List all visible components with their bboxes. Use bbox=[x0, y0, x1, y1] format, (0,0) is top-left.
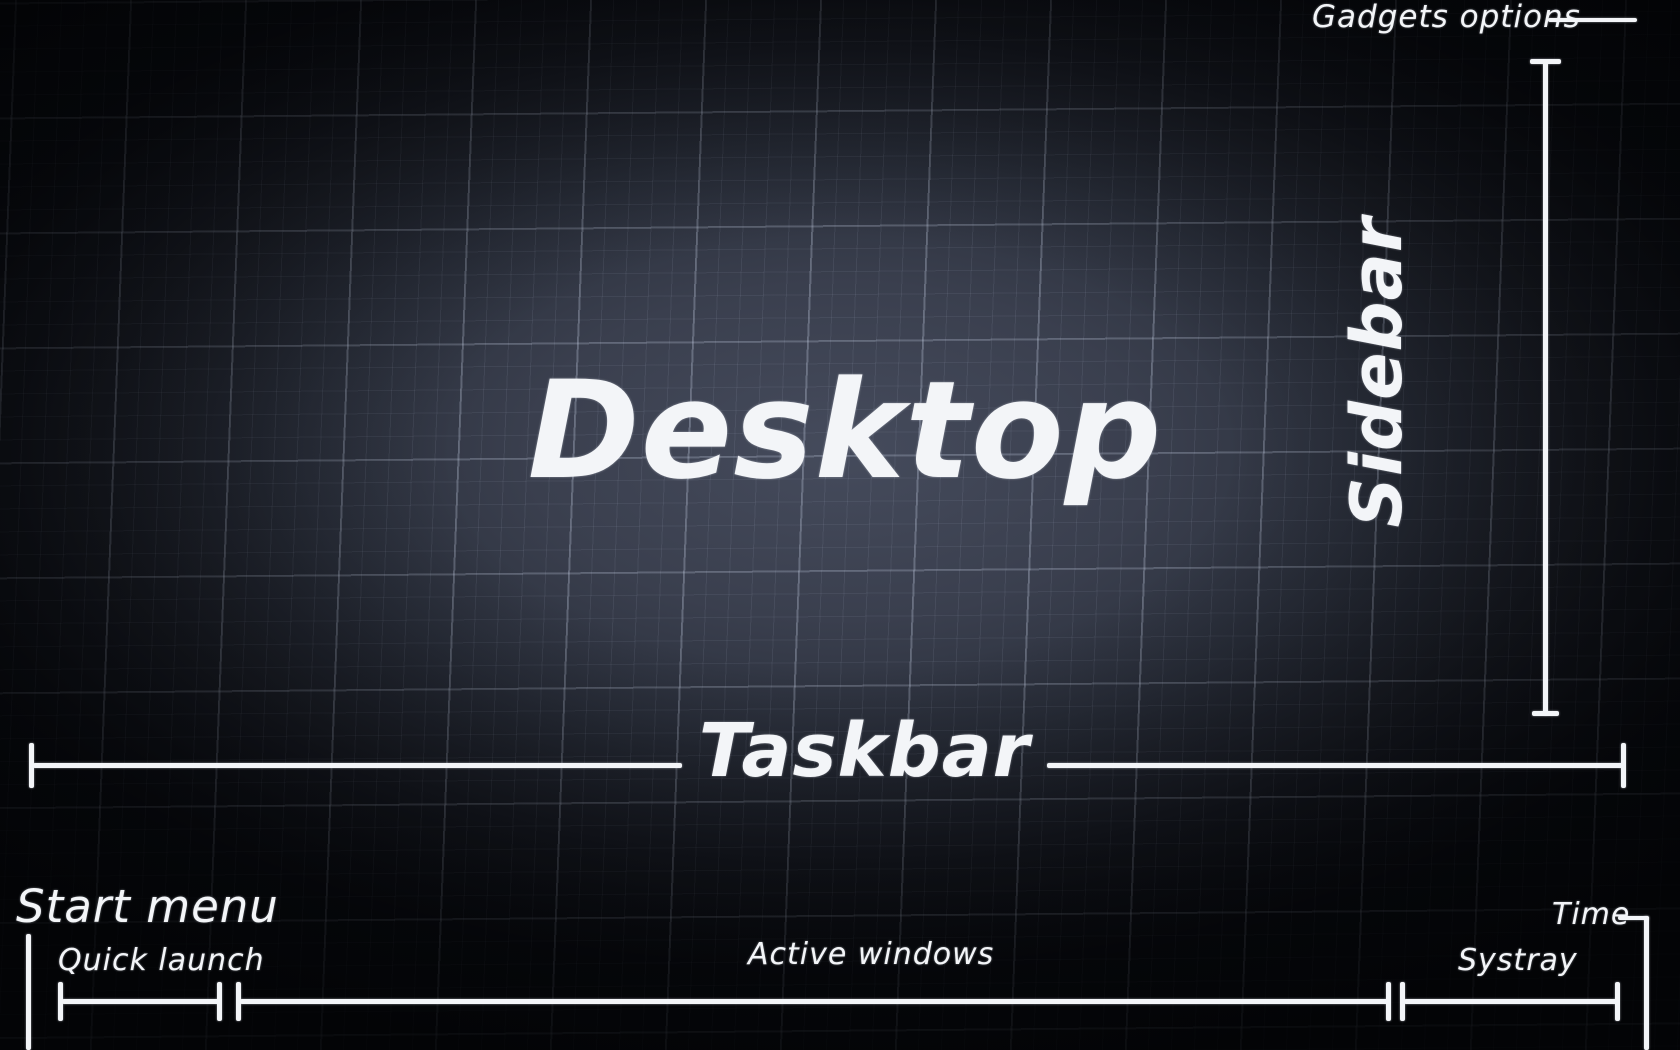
time-label: Time bbox=[1552, 900, 1630, 930]
taskbar-label: Taskbar bbox=[682, 700, 1047, 802]
gadgets-options-leader-line bbox=[1548, 18, 1637, 22]
quick-launch-dimension-cap-right bbox=[217, 982, 222, 1021]
active-windows-dimension-cap-right bbox=[1386, 982, 1391, 1021]
desktop-label: Desktop bbox=[555, 325, 1135, 535]
systray-label: Systray bbox=[1458, 946, 1578, 976]
quick-launch-dimension-line bbox=[62, 999, 219, 1004]
taskbar-dimension-line-right bbox=[1047, 763, 1623, 768]
sidebar-dimension-cap-bottom bbox=[1532, 711, 1559, 716]
taskbar-dimension-cap-right bbox=[1621, 743, 1626, 788]
quick-launch-label: Quick launch bbox=[58, 946, 265, 976]
systray-dimension-cap-right bbox=[1615, 982, 1620, 1021]
active-windows-dimension-line bbox=[240, 999, 1388, 1004]
gadgets-options-label: Gadgets options bbox=[1312, 2, 1581, 33]
taskbar-dimension-line-left bbox=[33, 763, 682, 768]
start-menu-leader-line bbox=[26, 934, 31, 1050]
active-windows-label: Active windows bbox=[748, 940, 994, 970]
start-menu-label: Start menu bbox=[16, 884, 279, 929]
systray-dimension-line bbox=[1404, 999, 1618, 1004]
time-leader-line-vertical bbox=[1644, 916, 1649, 1050]
sidebar-dimension-line bbox=[1543, 61, 1548, 715]
blueprint-canvas: Gadgets options Sidebar Desktop Taskbar … bbox=[0, 0, 1680, 1050]
sidebar-label: Sidebar bbox=[1327, 172, 1427, 572]
